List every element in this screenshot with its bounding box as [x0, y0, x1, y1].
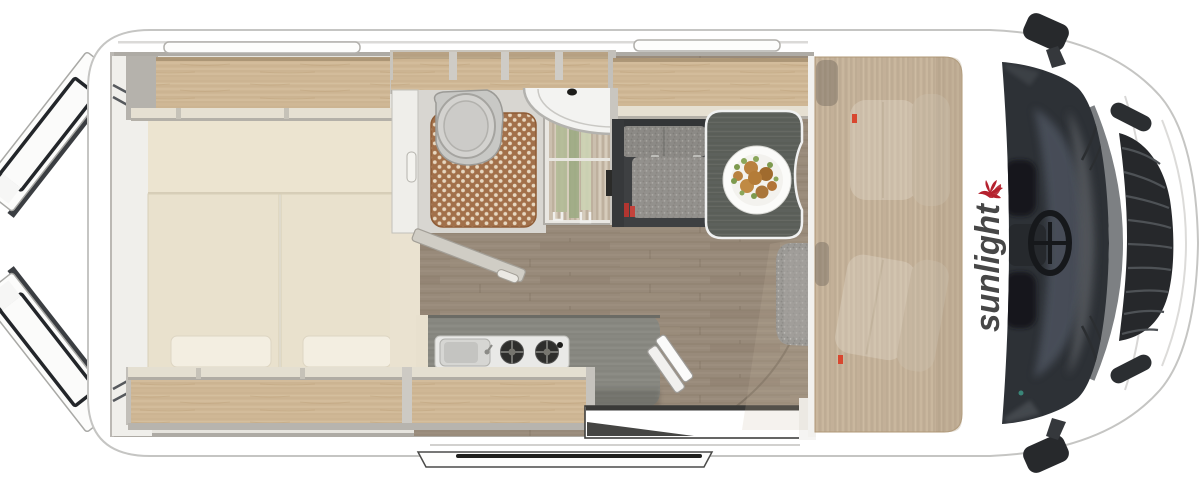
svg-text:sunlight: sunlight	[969, 202, 1007, 332]
